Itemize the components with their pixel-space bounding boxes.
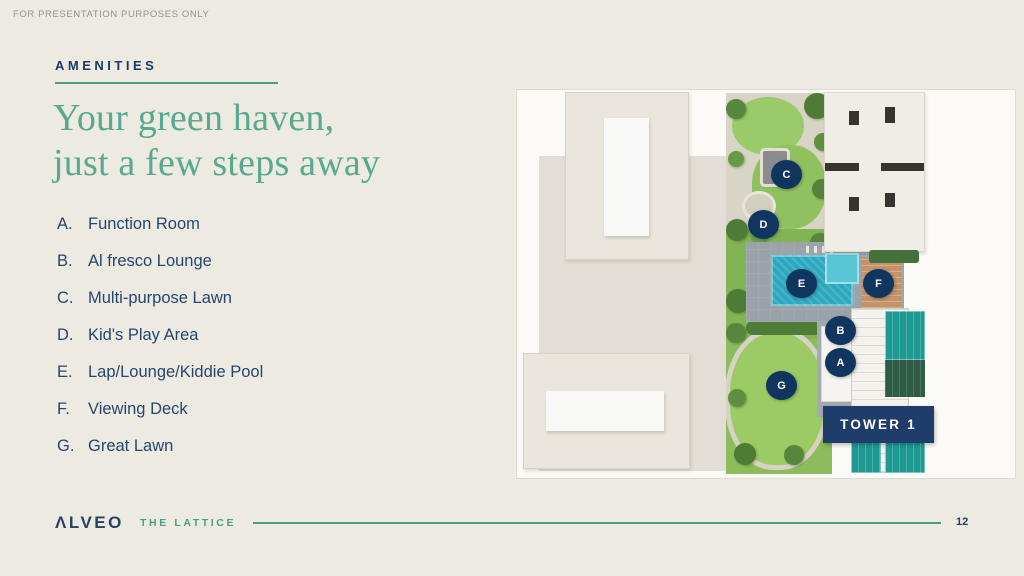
amenity-letter: A. bbox=[57, 213, 88, 235]
tree bbox=[726, 99, 746, 119]
amenity-label: Function Room bbox=[88, 213, 200, 235]
amenities-section-label: AMENITIES bbox=[55, 58, 157, 73]
building-window bbox=[849, 197, 859, 211]
amenity-item-c: C. Multi-purpose Lawn bbox=[57, 287, 263, 309]
amenity-letter: G. bbox=[57, 435, 88, 457]
title-line-1: Your green haven, bbox=[53, 96, 380, 141]
tree bbox=[728, 389, 746, 407]
title-line-2: just a few steps away bbox=[53, 141, 380, 186]
building-window bbox=[849, 111, 859, 125]
map-marker-g: G bbox=[766, 371, 797, 400]
map-marker-d: D bbox=[748, 210, 779, 239]
map-marker-b: B bbox=[825, 316, 856, 345]
tower-1-label: TOWER 1 bbox=[823, 406, 934, 443]
amenity-item-b: B. Al fresco Lounge bbox=[57, 250, 263, 272]
site-plan: TOWER 1 C D E F B A G bbox=[517, 90, 1015, 478]
tree bbox=[728, 151, 744, 167]
building-window bbox=[885, 107, 895, 123]
map-marker-c: C bbox=[771, 160, 802, 189]
amenity-item-e: E. Lap/Lounge/Kiddie Pool bbox=[57, 361, 263, 383]
project-name: THE LATTICE bbox=[140, 517, 236, 529]
amenity-item-a: A. Function Room bbox=[57, 213, 263, 235]
amenity-item-f: F. Viewing Deck bbox=[57, 398, 263, 420]
amenity-label: Viewing Deck bbox=[88, 398, 188, 420]
building-window bbox=[885, 193, 895, 207]
amenity-label: Al fresco Lounge bbox=[88, 250, 212, 272]
unit-block-teal bbox=[851, 442, 881, 473]
amenity-letter: E. bbox=[57, 361, 88, 383]
unit-block-green bbox=[885, 360, 925, 397]
section-underline bbox=[55, 82, 278, 84]
amenity-letter: D. bbox=[57, 324, 88, 346]
map-marker-a: A bbox=[825, 348, 856, 377]
building-window bbox=[825, 163, 859, 171]
amenity-label: Lap/Lounge/Kiddie Pool bbox=[88, 361, 263, 383]
amenity-letter: B. bbox=[57, 250, 88, 272]
page-title: Your green haven, just a few steps away bbox=[53, 96, 380, 186]
site-plan-card: TOWER 1 C D E F B A G bbox=[516, 89, 1016, 479]
building-upper-right bbox=[824, 92, 925, 252]
tree bbox=[784, 445, 804, 465]
amenity-letter: C. bbox=[57, 287, 88, 309]
amenity-item-g: G. Great Lawn bbox=[57, 435, 263, 457]
hedge bbox=[746, 321, 826, 335]
tree bbox=[726, 323, 746, 343]
amenity-label: Multi-purpose Lawn bbox=[88, 287, 232, 309]
tree bbox=[726, 219, 748, 241]
building-roof bbox=[604, 118, 649, 236]
unit-block-teal bbox=[885, 442, 925, 473]
amenity-label: Kid's Play Area bbox=[88, 324, 198, 346]
building-roof bbox=[546, 391, 664, 431]
disclaimer-text: FOR PRESENTATION PURPOSES ONLY bbox=[13, 9, 209, 20]
amenity-item-d: D. Kid's Play Area bbox=[57, 324, 263, 346]
map-marker-f: F bbox=[863, 269, 894, 298]
alveo-logo: ΛLVEO bbox=[55, 513, 124, 533]
tree bbox=[734, 443, 756, 465]
building-window bbox=[881, 163, 924, 171]
map-marker-e: E bbox=[786, 269, 817, 298]
page-number: 12 bbox=[956, 516, 968, 528]
presentation-slide: FOR PRESENTATION PURPOSES ONLY AMENITIES… bbox=[0, 0, 1024, 576]
kiddie-pool bbox=[825, 253, 859, 284]
amenity-label: Great Lawn bbox=[88, 435, 173, 457]
footer-divider bbox=[253, 522, 941, 524]
unit-block-teal bbox=[885, 311, 925, 360]
hedge bbox=[869, 250, 919, 263]
amenity-letter: F. bbox=[57, 398, 88, 420]
amenity-list: A. Function Room B. Al fresco Lounge C. … bbox=[57, 213, 263, 457]
